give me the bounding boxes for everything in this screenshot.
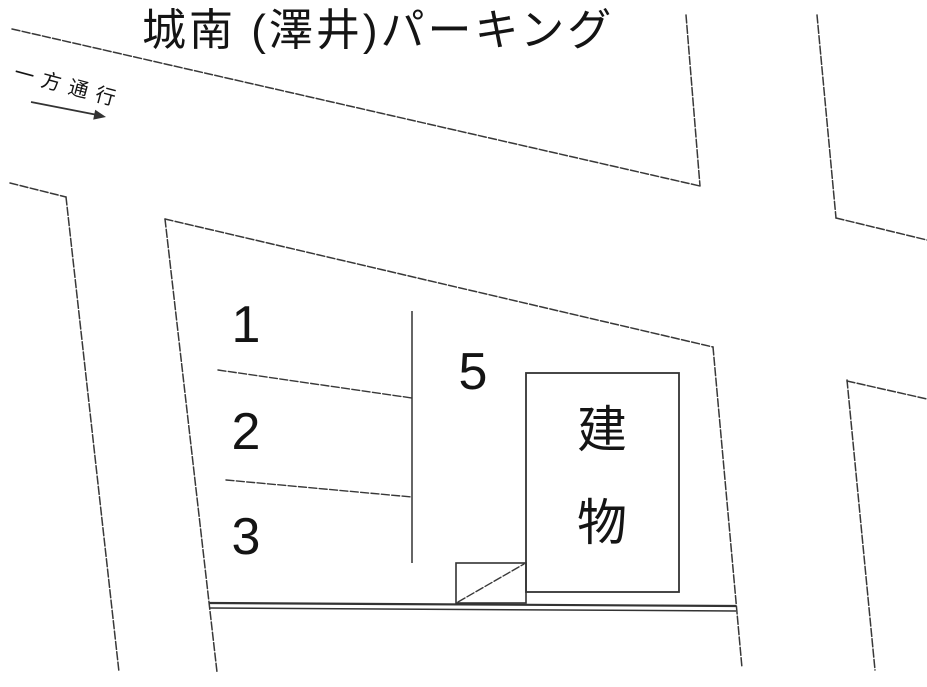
left-street-west-edge (66, 197, 119, 672)
right-street-east-edge-north (817, 15, 836, 218)
space-number-3: 3 (226, 511, 266, 563)
lot-right-boundary (713, 347, 742, 668)
street-diagonal-bottom-west (10, 183, 66, 197)
one-way-arrow-head (93, 110, 106, 120)
space-number-2: 2 (226, 406, 266, 458)
building-label-line-2: 物 (577, 498, 627, 548)
stall-divider-2-3 (226, 480, 412, 497)
right-street-east-edge-south (847, 380, 875, 670)
building-label-line-1: 建 (577, 405, 627, 455)
one-way-arrow-shaft (31, 102, 95, 115)
street-diagonal-top-east (836, 218, 927, 240)
space-number-5: 5 (453, 346, 493, 398)
south-curb-line-inner (209, 608, 736, 611)
stall-divider-1-2 (218, 370, 412, 398)
parking-map: 城南 (澤井)パーキング 一方通行 1 2 3 5 建 物 (0, 0, 927, 687)
entrance-slope-diagonal (458, 564, 524, 602)
page-title: 城南 (澤井)パーキング (142, 9, 614, 53)
right-street-west-edge-north (686, 15, 700, 186)
street-diagonal-bottom-east (847, 381, 927, 399)
space-number-1: 1 (226, 299, 266, 351)
